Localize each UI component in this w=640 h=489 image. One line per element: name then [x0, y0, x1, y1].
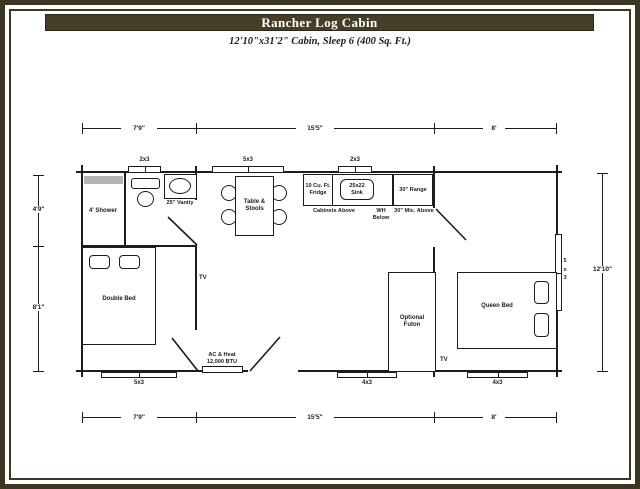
dim-tick [556, 412, 557, 423]
window-label: 2x3 [338, 157, 372, 164]
window-label-stacked: 5x3 [562, 257, 568, 283]
window-queen-bottom [467, 372, 528, 379]
range-label: 30" Range [394, 187, 432, 194]
queen-room-door-swing [436, 209, 466, 240]
water-heater-label: WH Below [369, 208, 393, 221]
bedroom-door-swing [172, 338, 198, 371]
window-dining-top [212, 166, 284, 173]
dim-tick [434, 412, 435, 423]
dim-tick [33, 246, 44, 247]
dim-tick [33, 371, 44, 372]
ac-heat-label: AC & Heat [198, 352, 246, 359]
dim-top-1: 7'9" [121, 125, 157, 132]
window-label: 4x3 [337, 380, 397, 387]
pillow [534, 313, 549, 337]
ac-unit [202, 366, 243, 373]
toilet-bowl [137, 191, 154, 207]
dining-table: Table & Stools [235, 176, 274, 236]
window-label: 2x3 [128, 157, 161, 164]
double-bed-label: Double Bed [85, 296, 153, 303]
dim-left-2: 8'1" [27, 304, 50, 311]
dim-tick [82, 412, 83, 423]
dim-right-1: 12'10" [588, 266, 617, 273]
dim-tick [434, 123, 435, 134]
window-bath-top [128, 166, 161, 173]
floor-plan: 2x3 5x3 2x3 5x3 5x3 4x3 4x3 4' Shower 25… [0, 0, 640, 489]
futon-label: Optional Futon [395, 315, 429, 329]
floor-plan-page: { "header": { "title": "Rancher Log Cabi… [0, 0, 640, 489]
vanity-sink-basin [169, 178, 191, 194]
tv-queen-label: TV [440, 357, 454, 364]
dim-top-3: 8' [483, 125, 505, 132]
window-label: 5x3 [101, 380, 177, 387]
shower-head-strip [84, 176, 123, 184]
bath-door-swing [168, 217, 197, 245]
dim-left-1: 4'9" [27, 206, 50, 213]
pillow [119, 255, 140, 269]
dim-tick [82, 123, 83, 134]
window-futon-bottom [337, 372, 397, 379]
dim-tick [597, 371, 608, 372]
futon: Optional Futon [388, 272, 436, 372]
pillow [89, 255, 110, 269]
table-label: Table & Stools [240, 199, 270, 213]
dim-bottom-3: 8' [483, 414, 505, 421]
microwave-label: 30" Mic. Above [391, 208, 437, 215]
dim-tick [196, 412, 197, 423]
dim-tick [33, 175, 44, 176]
window-bedroom-bottom [101, 372, 177, 379]
window-label: 4x3 [467, 380, 528, 387]
fridge: 10 Cu. Ft. Fridge [303, 174, 333, 206]
entry-door-swing [250, 337, 280, 371]
range: 30" Range [393, 174, 433, 206]
dim-bottom-1: 7'9" [121, 414, 157, 421]
dim-bottom-2: 15'5" [296, 414, 334, 421]
tv-living-label: TV [199, 275, 213, 282]
dim-tick [556, 123, 557, 134]
window-label: 5x3 [212, 157, 284, 164]
fridge-label: 10 Cu. Ft. Fridge [305, 183, 331, 196]
dim-line-left [38, 175, 39, 371]
window-kitchen-top [338, 166, 372, 173]
sink-label: 25x22 Sink [344, 183, 370, 196]
kitchen-sink: 25x22 Sink [340, 179, 374, 200]
dim-top-2: 15'5" [296, 125, 334, 132]
dim-tick [196, 123, 197, 134]
shower-label: 4' Shower [81, 208, 125, 215]
vanity-label: 25" Vanity [159, 200, 201, 207]
dim-tick [597, 173, 608, 174]
pillow [534, 281, 549, 304]
toilet-tank [131, 178, 160, 189]
queen-bed-label: Queen Bed [463, 303, 531, 310]
ac-btu-label: 12,000 BTU [198, 359, 246, 366]
cabinets-above-label: Cabinets Above [305, 208, 363, 215]
